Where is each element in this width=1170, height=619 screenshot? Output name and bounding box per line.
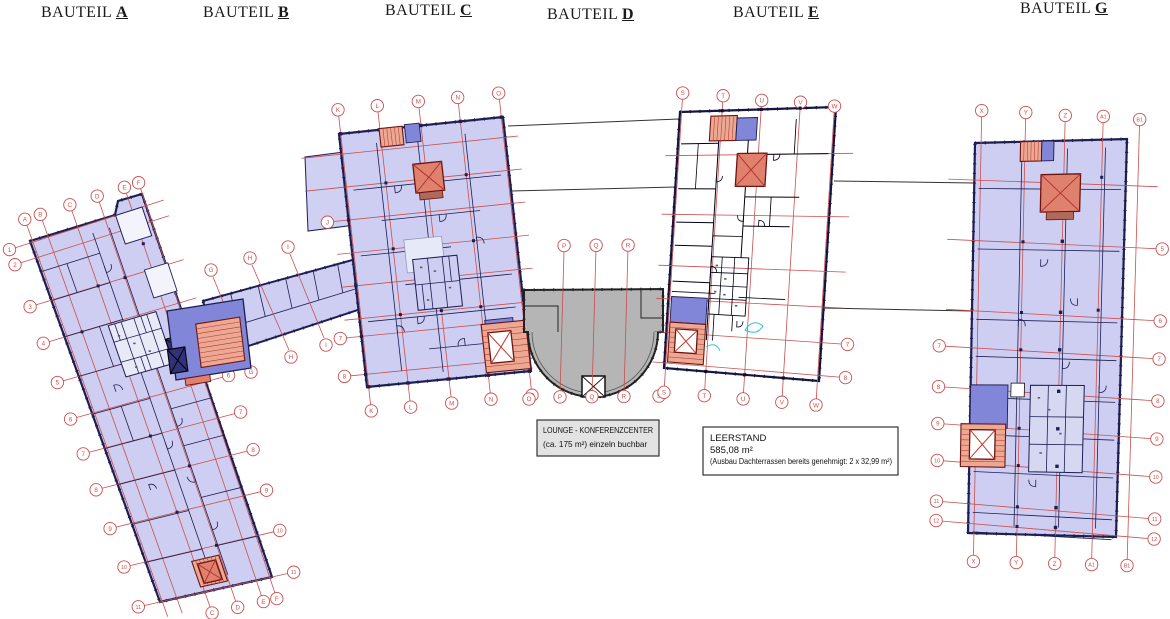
svg-text:7: 7: [937, 343, 941, 350]
svg-text:8: 8: [343, 374, 347, 381]
svg-text:Q: Q: [594, 243, 599, 250]
svg-text:8: 8: [94, 487, 98, 494]
svg-text:T: T: [721, 93, 725, 100]
svg-text:585,08 m²: 585,08 m²: [710, 445, 753, 456]
svg-text:N: N: [489, 396, 493, 403]
svg-text:9: 9: [108, 526, 112, 533]
svg-text:X: X: [971, 559, 975, 566]
svg-text:X: X: [980, 108, 984, 115]
svg-text:J: J: [326, 219, 329, 226]
svg-text:W: W: [832, 103, 838, 110]
svg-text:O: O: [496, 90, 501, 97]
svg-text:C: C: [210, 610, 215, 617]
svg-text:11: 11: [135, 605, 141, 611]
svg-text:7: 7: [339, 336, 343, 343]
svg-text:B1: B1: [1124, 564, 1131, 570]
svg-text:E: E: [261, 599, 265, 606]
svg-text:9: 9: [936, 421, 940, 428]
svg-text:12: 12: [933, 519, 939, 525]
svg-text:L: L: [409, 404, 413, 411]
svg-text:6: 6: [227, 373, 231, 380]
svg-text:E: E: [122, 185, 126, 192]
svg-text:S: S: [681, 90, 685, 97]
svg-text:7: 7: [1157, 356, 1161, 363]
svg-text:B: B: [38, 212, 42, 219]
svg-text:S: S: [662, 390, 666, 397]
svg-text:(Ausbau Dachterrassen bereits: (Ausbau Dachterrassen bereits genehmigt:…: [710, 457, 892, 466]
svg-text:3: 3: [28, 304, 32, 311]
svg-text:Y: Y: [1014, 560, 1018, 567]
svg-text:H: H: [289, 354, 293, 361]
svg-text:9: 9: [265, 487, 269, 494]
svg-text:11: 11: [934, 499, 940, 505]
svg-text:W: W: [813, 402, 819, 409]
svg-text:G: G: [249, 369, 254, 376]
svg-text:8: 8: [844, 375, 848, 382]
svg-text:10: 10: [934, 458, 940, 464]
svg-text:C: C: [68, 202, 73, 209]
svg-text:10: 10: [277, 528, 283, 534]
svg-text:2: 2: [13, 262, 17, 269]
svg-text:A1: A1: [1088, 563, 1095, 569]
svg-text:11: 11: [291, 570, 297, 576]
svg-text:L: L: [376, 103, 380, 110]
svg-text:F: F: [275, 596, 279, 603]
svg-text:Q: Q: [589, 394, 594, 401]
svg-text:M: M: [416, 99, 421, 106]
svg-text:D: D: [95, 193, 100, 200]
svg-text:8: 8: [251, 447, 255, 454]
svg-text:(ca. 175 m²) einzeln buchbar: (ca. 175 m²) einzeln buchbar: [543, 440, 647, 449]
svg-text:Z: Z: [1053, 561, 1057, 568]
svg-text:G: G: [209, 267, 214, 274]
svg-text:10: 10: [1153, 475, 1159, 481]
svg-text:8: 8: [1156, 398, 1160, 405]
svg-text:D: D: [235, 605, 240, 612]
svg-text:Y: Y: [1024, 110, 1028, 117]
svg-text:7: 7: [239, 409, 243, 416]
svg-text:N: N: [455, 95, 459, 102]
svg-text:7: 7: [846, 342, 850, 349]
svg-text:R: R: [622, 394, 627, 401]
svg-text:R: R: [626, 242, 631, 249]
svg-text:A1: A1: [1100, 114, 1107, 120]
svg-text:6: 6: [1158, 318, 1162, 325]
svg-text:H: H: [248, 255, 252, 262]
svg-text:1: 1: [8, 247, 12, 254]
svg-text:T: T: [702, 393, 706, 400]
svg-text:6: 6: [69, 416, 73, 423]
svg-text:Z: Z: [1063, 113, 1067, 120]
svg-text:5: 5: [56, 380, 60, 387]
svg-text:9: 9: [1155, 436, 1159, 443]
svg-text:O: O: [527, 396, 532, 403]
svg-text:4: 4: [42, 341, 46, 348]
svg-text:M: M: [449, 400, 454, 407]
svg-text:11: 11: [1152, 517, 1158, 523]
svg-text:12: 12: [1151, 537, 1157, 543]
svg-text:8: 8: [937, 384, 941, 391]
svg-text:10: 10: [121, 565, 127, 571]
svg-text:P: P: [562, 243, 566, 250]
svg-text:I: I: [287, 244, 289, 251]
svg-text:LOUNGE - KONFERENZCENTER: LOUNGE - KONFERENZCENTER: [543, 425, 653, 435]
svg-text:U: U: [759, 98, 763, 105]
svg-text:P: P: [558, 394, 562, 401]
svg-text:I: I: [325, 342, 327, 349]
svg-text:U: U: [741, 396, 745, 403]
svg-text:5: 5: [1160, 246, 1164, 253]
svg-text:LEERSTAND: LEERSTAND: [710, 433, 766, 444]
svg-text:B1: B1: [1136, 117, 1143, 123]
svg-text:7: 7: [81, 451, 85, 458]
svg-text:F: F: [137, 180, 141, 187]
